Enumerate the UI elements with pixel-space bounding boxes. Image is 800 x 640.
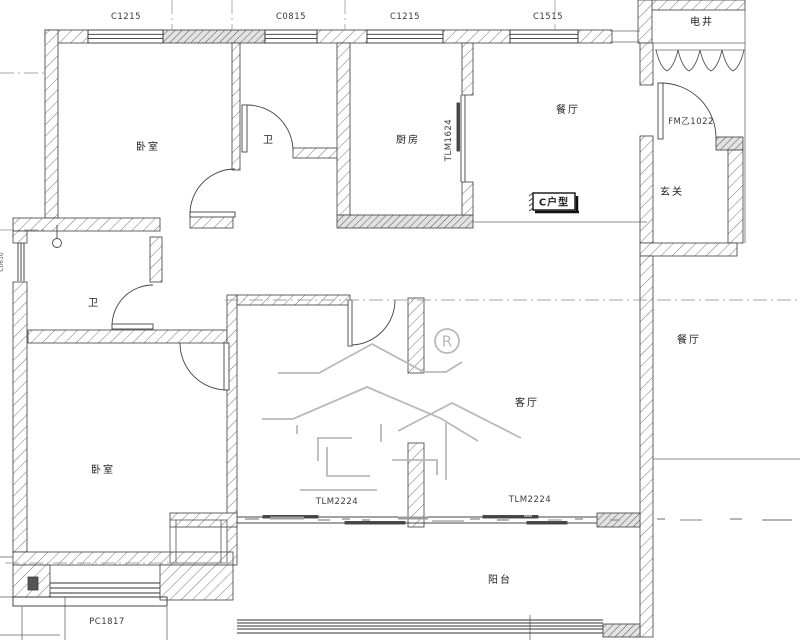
window-label-c1515: C1515 (533, 12, 563, 22)
room-label-bath-left: 卫 (88, 298, 100, 309)
opening-labels: C1215 C0815 C1215 C1515 FM乙1022 TLM1624 … (0, 12, 714, 627)
room-label-balcony: 阳台 (488, 573, 512, 586)
entry-door-leaf (658, 83, 663, 139)
door-label-entry: FM乙1022 (668, 117, 714, 127)
room-label-dining: 餐厅 (556, 103, 580, 116)
hall-door-arc (352, 300, 395, 345)
bedroom1-door-arc (190, 169, 235, 214)
door-label-balcony-slider-right: TLM2224 (508, 495, 551, 505)
room-label-bath-top: 卫 (263, 135, 275, 146)
floor-plan-drawing: R C户型 卧室 卫 厨房 餐厅 电井 玄 (0, 0, 800, 640)
room-label-living: 客厅 (515, 396, 539, 409)
unit-type-label: C户型 (539, 196, 569, 209)
bedroom1-door-leaf (190, 212, 235, 217)
window-label-side: C0610 (0, 252, 5, 272)
floor-plan-canvas: R C户型 卧室 卫 厨房 餐厅 电井 玄 (0, 0, 800, 640)
shaft-scallop-symbol (656, 50, 744, 71)
reference-lines (0, 0, 800, 640)
room-label-entry: 玄关 (660, 185, 684, 198)
bath1-door-leaf (242, 105, 247, 152)
walls-layer (13, 0, 745, 637)
window-label-c1215-b: C1215 (390, 12, 420, 22)
axis-lines (0, 0, 800, 563)
kitchen-sliding-door (457, 95, 465, 182)
watermark-logo: R (262, 329, 521, 490)
room-label-kitchen: 厨房 (396, 133, 420, 146)
hall-door-leaf (348, 300, 352, 346)
door-label-kitchen-slider: TLM1624 (444, 119, 454, 162)
bath2-door-arc (112, 285, 153, 326)
room-label-bedroom-bottom: 卧室 (91, 463, 115, 476)
room-labels: 卧室 卫 厨房 餐厅 电井 玄关 卫 卧室 客厅 阳台 餐厅 (88, 15, 714, 586)
bedroom2-door-leaf (224, 343, 229, 390)
door-label-balcony-slider-left: TLM2224 (315, 497, 358, 507)
entry-door-arc (661, 83, 716, 138)
window-label-c1215-a: C1215 (111, 12, 141, 22)
unit-type-box: C户型 (529, 193, 579, 212)
registered-mark-letter: R (442, 333, 452, 351)
room-label-bedroom-top: 卧室 (136, 140, 160, 153)
room-label-dining-neighbor: 餐厅 (677, 333, 701, 346)
bedroom2-door-arc (180, 343, 227, 390)
room-label-utility-shaft: 电井 (690, 15, 714, 28)
window-label-c0815: C0815 (276, 12, 306, 22)
watermark-roof-1 (278, 344, 462, 373)
bath2-door-leaf (112, 324, 153, 329)
window-label-pc1817: PC1817 (89, 617, 125, 627)
